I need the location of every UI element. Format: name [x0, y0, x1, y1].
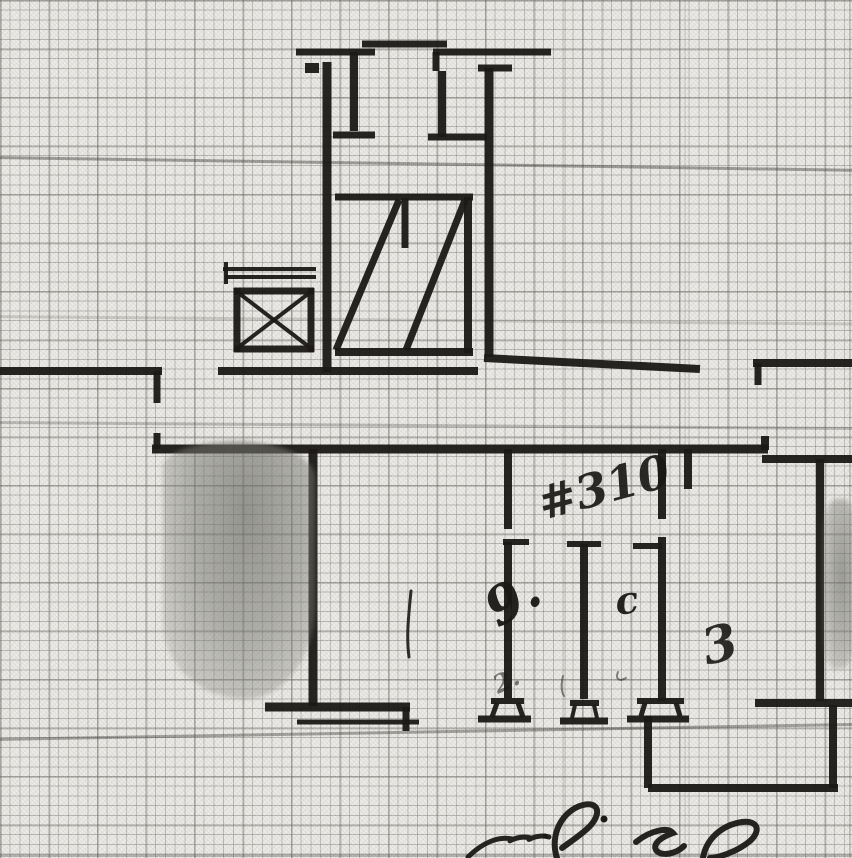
signature-dot — [601, 816, 608, 823]
signature-stroke — [636, 830, 684, 854]
handwritten-annotation: 3 — [696, 611, 744, 677]
handwritten-annotation: c — [612, 576, 641, 624]
wall-stroke — [594, 705, 597, 718]
wall-stroke — [676, 703, 680, 716]
eraser-smudge-left — [163, 441, 315, 699]
wall-stroke — [572, 705, 575, 718]
handwritten-annotations: #3109.c32. — [474, 444, 744, 700]
wall-stroke — [406, 200, 465, 350]
signature-flourish — [468, 804, 757, 858]
pen-mark — [617, 672, 626, 680]
wall-strokes — [0, 44, 852, 788]
pen-mark — [408, 591, 411, 657]
handwritten-annotation: 2. — [487, 662, 524, 700]
wall-stroke — [492, 703, 497, 717]
wall-stroke — [641, 703, 645, 716]
wall-stroke — [518, 703, 523, 717]
floor-plan-ink-drawing: #3109.c32. — [0, 0, 852, 858]
eraser-smudge-right — [823, 499, 852, 669]
handwritten-annotation: #310 — [532, 444, 676, 531]
scanned-floor-plan-page: #3109.c32. — [0, 0, 852, 858]
signature-stroke — [703, 822, 757, 858]
signature-stroke — [468, 836, 549, 857]
wall-stroke — [336, 200, 399, 350]
pen-mark — [562, 676, 564, 696]
wall-stroke — [484, 358, 700, 369]
handwritten-annotation: 9. — [474, 559, 552, 639]
signature-dot — [543, 834, 548, 839]
signature-stroke — [555, 804, 597, 858]
